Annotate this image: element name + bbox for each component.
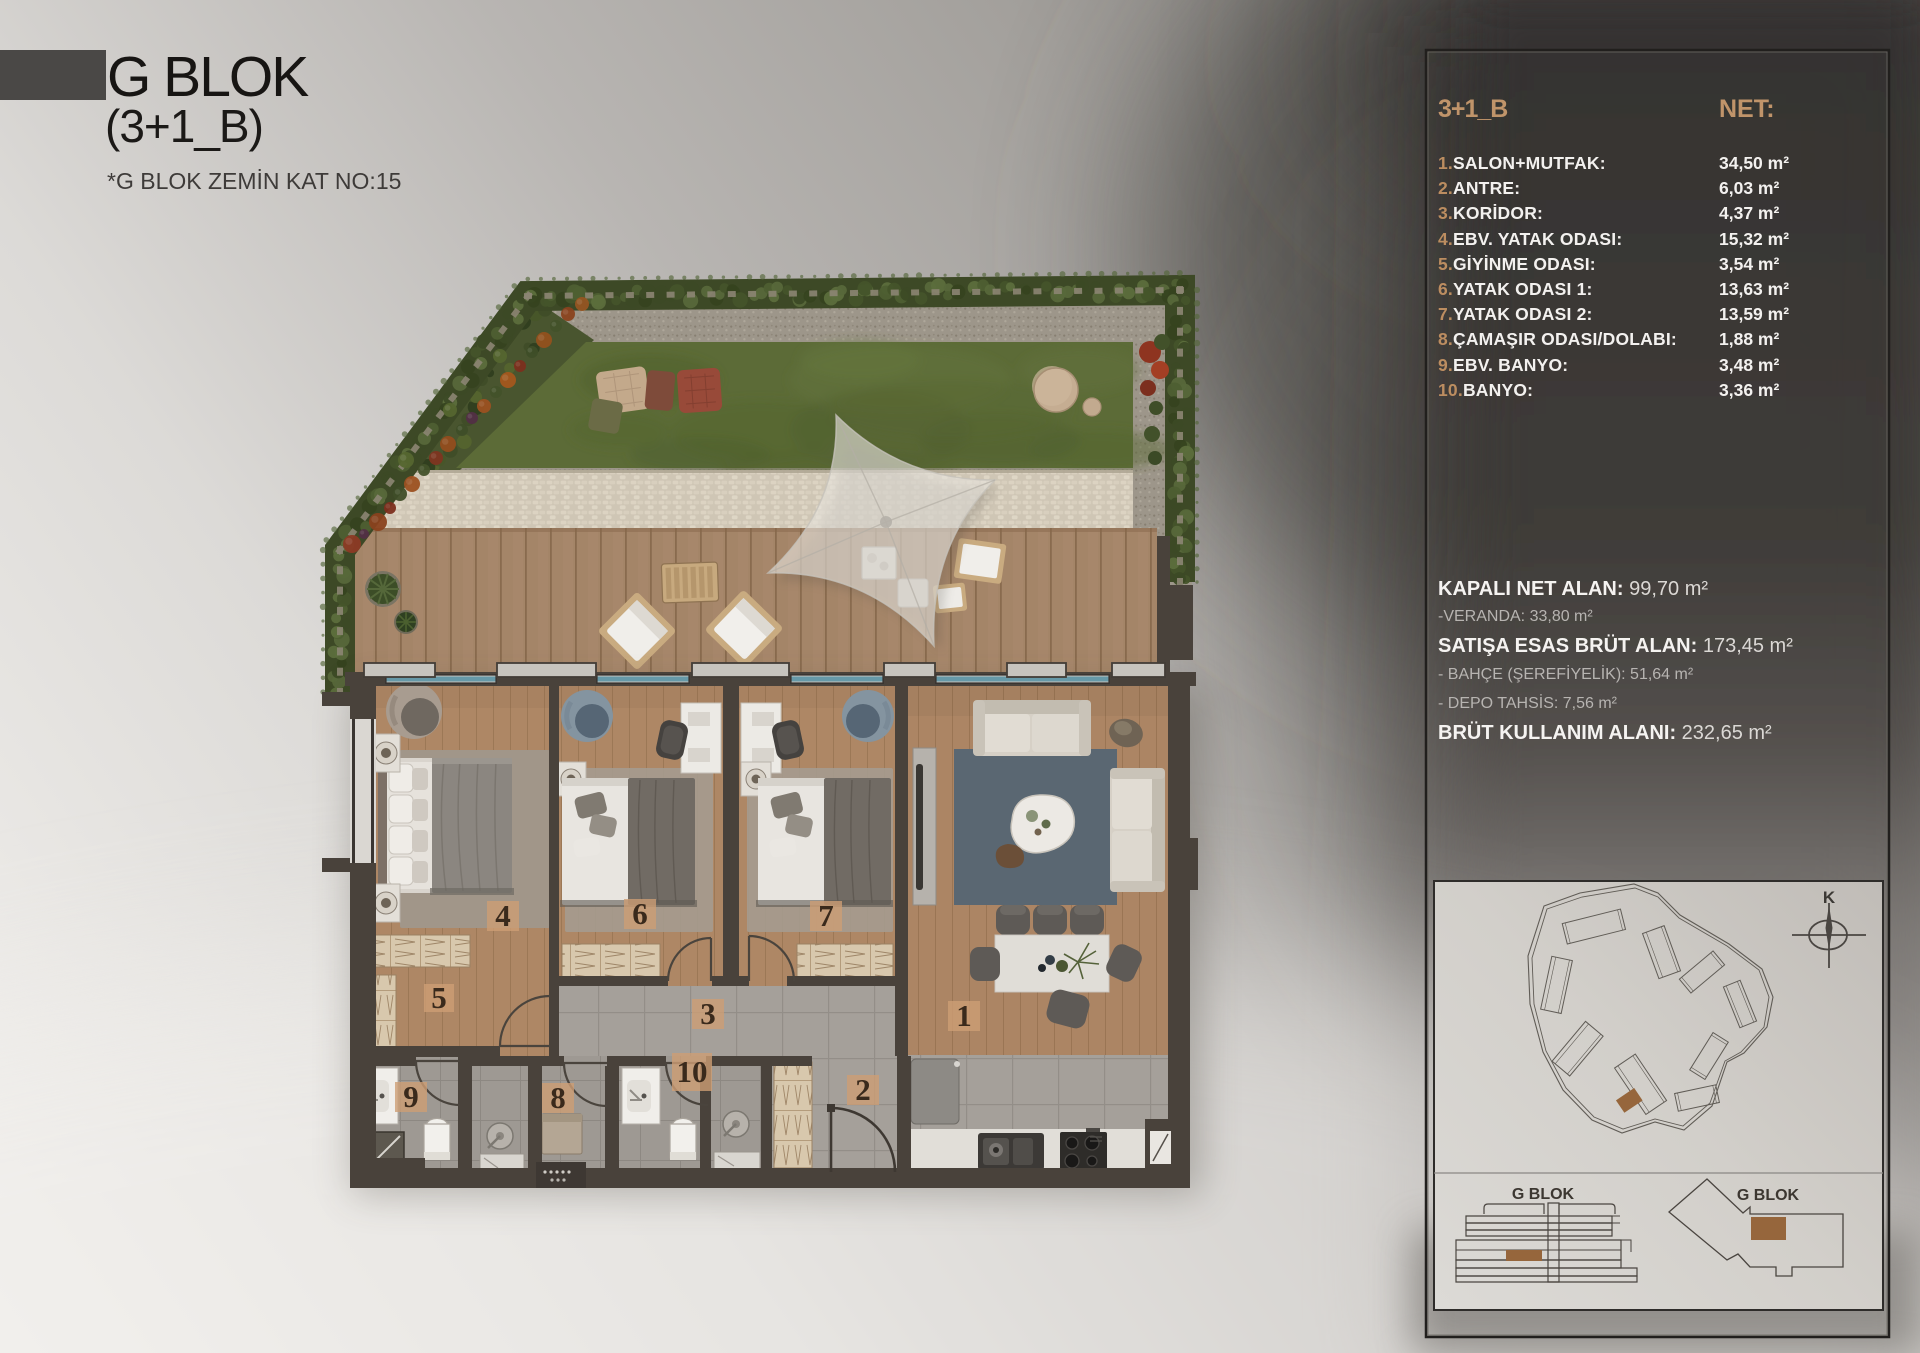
svg-text:2: 2: [855, 1072, 871, 1107]
svg-text:7: 7: [818, 898, 834, 933]
svg-text:1: 1: [956, 998, 972, 1033]
svg-text:K: K: [1823, 888, 1836, 907]
svg-text:G BLOK: G BLOK: [1512, 1186, 1575, 1203]
svg-text:4: 4: [495, 898, 511, 933]
svg-text:5: 5: [431, 980, 447, 1015]
svg-text:3: 3: [700, 996, 716, 1031]
svg-text:6: 6: [632, 896, 648, 931]
svg-text:9: 9: [403, 1079, 419, 1114]
svg-text:10: 10: [677, 1054, 708, 1089]
svg-text:G BLOK: G BLOK: [1737, 1187, 1800, 1204]
svg-text:8: 8: [550, 1080, 566, 1115]
